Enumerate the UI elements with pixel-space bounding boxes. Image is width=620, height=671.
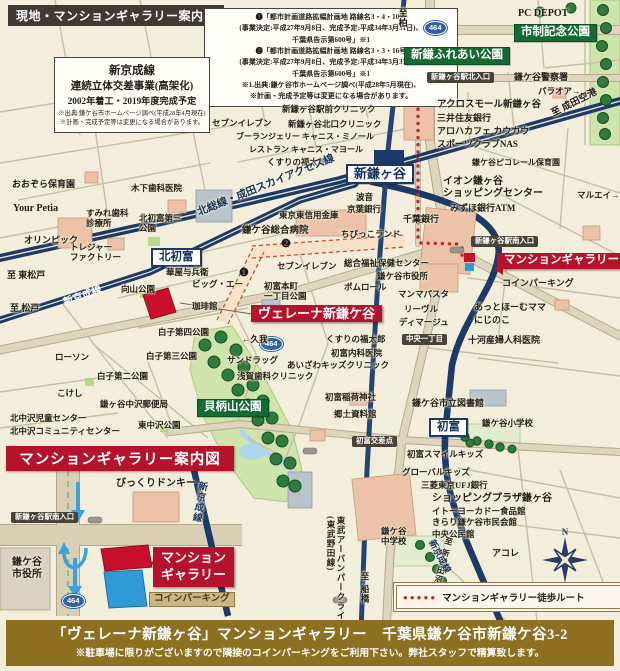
- note-rail-footnotes: ※出典:鎌ケ谷市ホームページ調べ(平成28年4月現在) ※計画・完成予定等は変更…: [57, 109, 207, 128]
- note-rail-line3: 2002年着工・2019年度完成予定: [57, 93, 207, 107]
- map-label: 浅賀歯科クリニック: [237, 371, 314, 381]
- map-label: びっくりドンキー: [116, 478, 196, 490]
- map-label: 郷土資料館: [334, 409, 377, 419]
- intersection-badge-hatsutomi: 初富交差点: [352, 436, 397, 447]
- map-label: 東中沢公園: [138, 420, 181, 430]
- property-label: ヴェレーナ新鎌ケ谷: [251, 305, 382, 322]
- map-label: みずほ銀行ATM: [450, 203, 515, 214]
- map-label: 千葉銀行: [403, 214, 439, 225]
- intersection-badge-chuo: 中央一丁目: [402, 334, 447, 345]
- walking-route-legend: ●●●●● マンションギャラリー徒歩ルート: [396, 585, 620, 609]
- map-label: すみれ歯科 診療所: [86, 208, 129, 228]
- map-label: アクロスモール新鎌ヶ谷: [437, 100, 541, 111]
- map-label: 華屋与兵衛: [166, 267, 209, 277]
- map-label: ローソン: [55, 352, 89, 362]
- coin-parking-label-inset: コインパーキング: [149, 592, 235, 607]
- map-label: 白子第二公園: [97, 371, 148, 381]
- note-rail-line1: 新京成線: [57, 62, 207, 78]
- inset-map-title: マンションギャラリー案内図: [6, 446, 234, 471]
- map-label: パラオア→: [538, 86, 581, 96]
- footer-bar: 「ヴェレーナ新鎌ヶ谷」マンションギャラリー 千葉県鎌ケ谷市新鎌ケ谷3-2 ※駐車…: [6, 620, 614, 666]
- map-label: 京葉銀行: [347, 204, 381, 214]
- park-label-kaigarayama: 貝柄山公園: [197, 399, 269, 417]
- map-label: 初富稲荷神社: [325, 392, 376, 402]
- map-label: 鎌ケ谷警察署: [514, 72, 568, 83]
- map-label: 波音: [356, 192, 373, 202]
- map-label: ちびっこランド: [341, 229, 401, 239]
- gallery-label-inset: マンション ギャラリー: [153, 547, 234, 587]
- map-label: トレジャー ファクトリー: [70, 242, 121, 262]
- map-label: ショッピングプラザ鎌ヶ谷: [432, 493, 552, 505]
- park-label-shinkama-fureai: 新鎌ふれあい公園: [404, 47, 510, 65]
- intersection-badge-south: 新鎌ヶ谷駅南入口: [471, 236, 538, 247]
- map-label: マンマパスタ: [398, 289, 449, 299]
- footer-property-address: 「ヴェレーナ新鎌ヶ谷」マンションギャラリー 千葉県鎌ケ谷市新鎌ケ谷3-2: [6, 623, 614, 644]
- compass-north-label: N: [542, 527, 588, 537]
- gallery-marker-red: [464, 253, 475, 262]
- map-label: PC DEPOT: [518, 8, 568, 20]
- map-label: あいざわキッズクリニック: [287, 360, 389, 370]
- map-label: 東京東信用金庫: [279, 210, 339, 220]
- map-label: 至 東松戸: [7, 270, 45, 281]
- map-label: ポムロール: [344, 282, 387, 292]
- map-label: スポーツクラブNAS: [437, 139, 518, 150]
- map-label: ビッグ・エー: [192, 279, 243, 289]
- map-label: アコレ: [492, 548, 519, 559]
- map-label: ブーランジェリー キャニス・ミノール: [236, 132, 374, 141]
- footer-parking-note: ※駐車場に限りがございますので隣接のコインパーキングをご利用下さい。弊社スタッフ…: [6, 645, 614, 659]
- plan-marker-2: ❷: [281, 238, 291, 251]
- map-label: 鎌ケ谷市立図書館: [412, 398, 484, 409]
- access-map: 現地・マンションギャラリー案内図 ❶「都市計画道路拡幅計画地 路線名3・4・10…: [0, 0, 620, 671]
- map-label: 木下歯科医院: [131, 183, 182, 193]
- map-label: ディマージュ: [399, 317, 449, 327]
- map-label: 鎌ヶ谷中沢郵便局: [100, 399, 168, 409]
- map-label: 初富本町 一丁目公園: [264, 281, 307, 301]
- map-label: 北初富第三 公園: [139, 213, 182, 233]
- map-label: イオン鎌ヶ谷 ショッピングセンター: [443, 176, 543, 200]
- legend-text: マンションギャラリー徒歩ルート: [442, 590, 585, 604]
- map-label: 至 船橋: [360, 572, 370, 604]
- map-label: 初富スマイルキッズ: [407, 449, 483, 459]
- station-shinkamagaya: 新鎌ヶ谷: [346, 164, 414, 184]
- map-label: 鎌ケ谷総合病院: [242, 226, 309, 237]
- map-label: 新鎌ヶ谷北口クリニック: [288, 119, 382, 129]
- map-label: 鎌ケ谷小学校: [482, 418, 533, 428]
- map-label: 新鎌ヶ谷駅前クリニック: [282, 104, 376, 114]
- map-label: Your Petia: [13, 203, 58, 215]
- map-label: 北中沢児童センター: [10, 413, 87, 423]
- route-shield-464: 464: [62, 594, 85, 608]
- map-label: 鎌ケ谷市役所: [377, 271, 428, 281]
- map-label: おおぞら保育園: [12, 179, 75, 190]
- railway-label-tobu: 東武アーバンパークライン (東武野田線): [326, 516, 346, 630]
- map-label: 初富内科医院: [331, 348, 382, 358]
- map-label: きらり鎌ケ谷市民会館: [432, 517, 517, 527]
- map-label: 鎌ケ谷ピコレール保育園: [472, 158, 560, 167]
- map-label: 白子第四公園: [158, 327, 209, 337]
- map-title: 現地・マンションギャラリー案内図: [8, 5, 224, 26]
- station-hatsutomi: 初富: [429, 418, 468, 437]
- map-label: アロハカフェ カウカウ: [437, 126, 529, 137]
- map-label: 向山公園: [121, 284, 155, 294]
- map-label: にじのこ: [474, 315, 510, 326]
- map-label: 鎌ケ谷 中学校: [381, 526, 407, 546]
- map-label: コインパーキング: [502, 278, 574, 289]
- map-label: 三井住友銀行: [437, 113, 491, 124]
- map-label: 珈琲館: [192, 301, 218, 311]
- note-rail-project: 新京成線 連続立体交差事業(高架化) 2002年着工・2019年度完成予定 ※出…: [54, 57, 210, 133]
- route-shield-464: 464: [424, 21, 447, 35]
- map-label: マルエイ→: [577, 190, 620, 200]
- coin-parking-building: [104, 570, 147, 608]
- map-label: 至 松戸: [10, 303, 39, 314]
- map-label: レストラン キャニス・マヨール: [249, 145, 363, 154]
- intersection-badge-south-inset: 新鎌ヶ谷駅南入口: [11, 512, 78, 523]
- map-label: 鎌ケ谷 市役所: [12, 557, 42, 581]
- map-label: セブンイレブン: [212, 118, 272, 128]
- map-label: イトーヨーカドー食品館: [432, 506, 526, 516]
- map-label: セブンイレブン: [277, 261, 337, 271]
- map-label: 北中沢コミュニティセンター: [10, 426, 120, 436]
- map-label: 白子第三公園: [146, 351, 197, 361]
- note-rail-line2: 連続立体交差事業(高架化): [57, 78, 207, 93]
- map-label: サンドラッグ: [227, 355, 278, 365]
- map-label: ←久我: [242, 334, 268, 344]
- route-dots-icon: ●●●●●: [403, 593, 437, 602]
- map-label: 三菱東京UFJ銀行: [421, 480, 488, 490]
- map-label: こけし: [57, 388, 83, 398]
- map-label: くすりの福太郎: [326, 334, 386, 344]
- gallery-label: マンションギャラリー: [497, 253, 620, 269]
- compass-rose: N: [542, 527, 588, 588]
- gallery-marker-blue: [465, 263, 474, 271]
- park-label-shisei-kinen: 市制記念公園: [514, 24, 597, 42]
- map-label: リーヴル: [404, 304, 438, 314]
- compass-star-icon: [542, 537, 588, 583]
- map-label: 十河産婦人科医院: [468, 335, 540, 346]
- map-label: 至柏: [397, 8, 408, 28]
- station-kitahatsutomi: 北初富: [151, 248, 202, 267]
- map-label: あっとほーむママ: [474, 302, 546, 313]
- intersection-badge-north: 新鎌ヶ谷駅北入口: [427, 72, 494, 83]
- map-label: グローバルキッズ: [402, 467, 470, 477]
- map-label: 総合福祉保健センター: [344, 258, 429, 268]
